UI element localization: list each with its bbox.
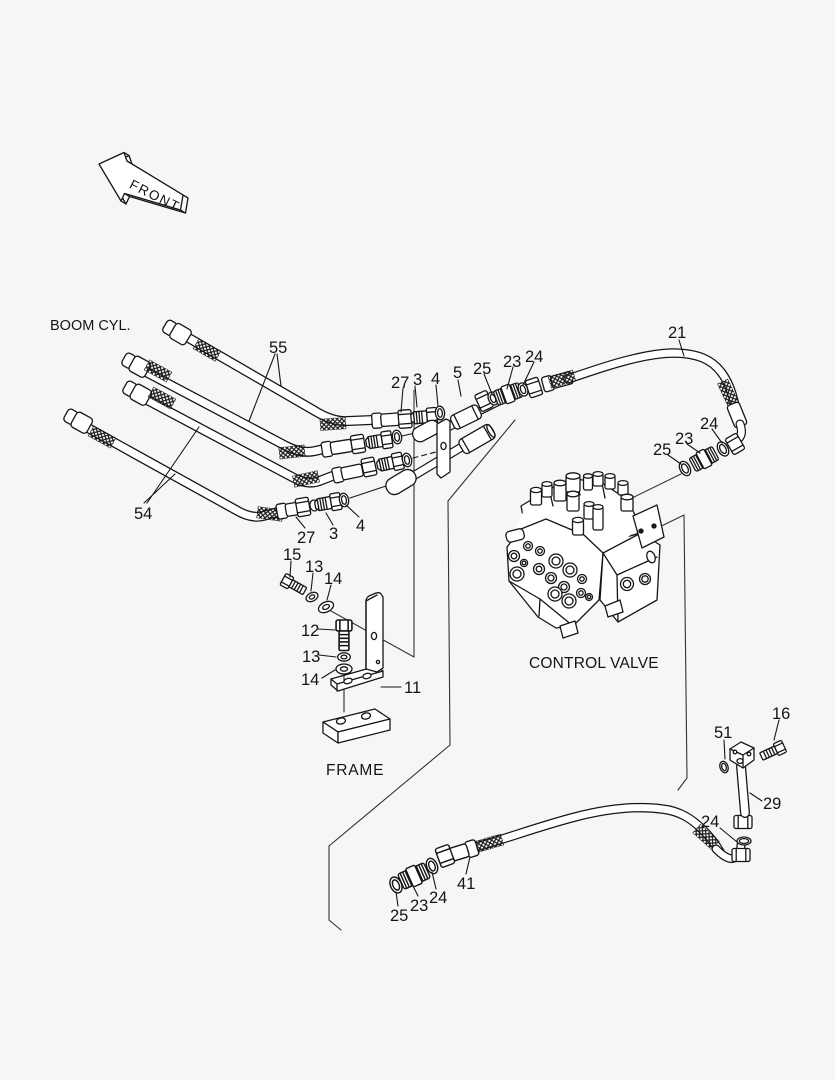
- svg-text:4: 4: [431, 370, 440, 388]
- svg-text:25: 25: [653, 441, 671, 459]
- svg-text:41: 41: [457, 875, 475, 893]
- svg-text:3: 3: [329, 525, 338, 543]
- svg-text:13: 13: [302, 648, 320, 666]
- svg-text:51: 51: [714, 724, 732, 742]
- svg-text:14: 14: [301, 671, 319, 689]
- svg-text:25: 25: [390, 907, 408, 925]
- svg-text:29: 29: [763, 795, 781, 813]
- svg-text:27: 27: [391, 374, 409, 392]
- svg-text:3: 3: [413, 371, 422, 389]
- svg-text:24: 24: [525, 348, 543, 366]
- svg-text:27: 27: [297, 529, 315, 547]
- svg-text:23: 23: [675, 430, 693, 448]
- svg-text:13: 13: [305, 558, 323, 576]
- svg-text:5: 5: [453, 364, 462, 382]
- svg-text:54: 54: [134, 505, 152, 523]
- svg-text:16: 16: [772, 705, 790, 723]
- svg-text:24: 24: [701, 813, 719, 831]
- svg-text:55: 55: [269, 339, 287, 357]
- svg-text:24: 24: [429, 889, 447, 907]
- svg-text:23: 23: [503, 353, 521, 371]
- svg-text:23: 23: [410, 897, 428, 915]
- svg-text:14: 14: [324, 570, 342, 588]
- svg-text:FRAME: FRAME: [326, 762, 384, 779]
- svg-text:21: 21: [668, 324, 686, 342]
- svg-text:24: 24: [700, 415, 718, 433]
- svg-text:4: 4: [356, 517, 365, 535]
- svg-text:CONTROL VALVE: CONTROL VALVE: [529, 655, 659, 672]
- svg-text:12: 12: [301, 622, 319, 640]
- svg-text:15: 15: [283, 546, 301, 564]
- svg-text:25: 25: [473, 360, 491, 378]
- svg-text:BOOM CYL.: BOOM CYL.: [50, 318, 131, 334]
- svg-text:11: 11: [404, 679, 421, 697]
